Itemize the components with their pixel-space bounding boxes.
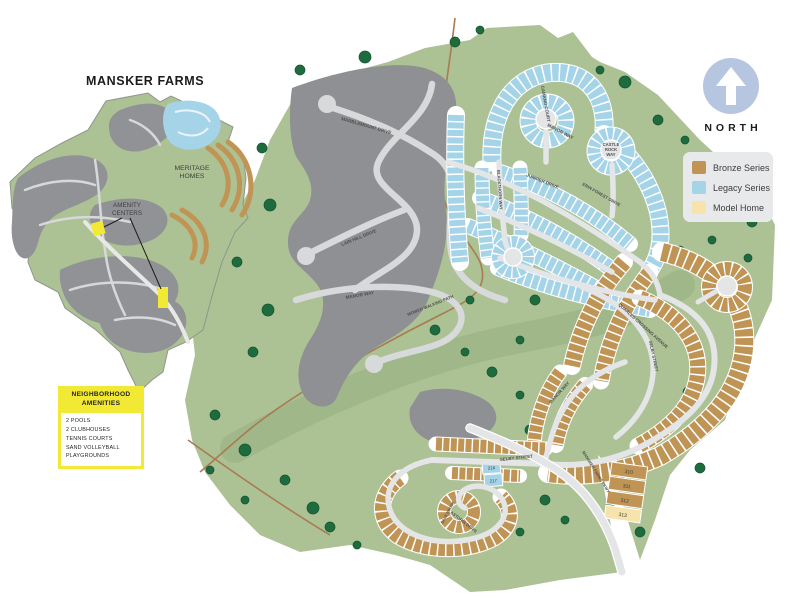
model-home-swatch bbox=[692, 201, 706, 214]
bronze-series-swatch bbox=[692, 161, 706, 174]
amenities-item: TENNIS COURTS bbox=[66, 435, 136, 444]
legend-label: Model Home bbox=[713, 203, 764, 213]
meritage-homes-label: HOMES bbox=[180, 173, 205, 180]
amenity-centers-label: AMENITY bbox=[113, 202, 142, 209]
main-map: 310 311 312 313 216 217 bbox=[185, 18, 775, 592]
amenities-item: 2 CLUBHOUSES bbox=[66, 426, 136, 435]
lot-number: 216 bbox=[488, 465, 496, 471]
legend-label: Bronze Series bbox=[713, 163, 770, 173]
lot-number: 313 bbox=[618, 512, 627, 519]
neighborhood-amenities-box: NEIGHBORHOOD AMENITIES 2 POOLS 2 CLUBHOU… bbox=[58, 386, 144, 469]
amenity-marker-east bbox=[158, 287, 168, 308]
map-title: MANSKER FARMS bbox=[86, 74, 204, 88]
amenities-item: 2 POOLS bbox=[66, 417, 136, 426]
north-label: NORTH bbox=[699, 122, 763, 134]
legend-row-bronze: Bronze Series bbox=[692, 161, 764, 174]
amenities-item: SAND VOLLEYBALL bbox=[66, 444, 136, 453]
lot-number: 310 bbox=[624, 469, 633, 476]
amenities-list: 2 POOLS 2 CLUBHOUSES TENNIS COURTS SAND … bbox=[58, 413, 144, 470]
community-site-map: 310 311 312 313 216 217 bbox=[0, 0, 795, 600]
amenity-centers-label: CENTERS bbox=[112, 210, 142, 217]
site-map-page: 310 311 312 313 216 217 bbox=[0, 0, 795, 600]
lot-number: 217 bbox=[490, 478, 498, 484]
north-arrow-icon bbox=[703, 58, 759, 114]
compass: NORTH bbox=[699, 58, 763, 134]
amenities-item: PLAYGROUNDS bbox=[66, 452, 136, 461]
meritage-homes-label: MERITAGE bbox=[175, 165, 210, 172]
lot-number: 311 bbox=[622, 483, 631, 490]
amenities-heading: NEIGHBORHOOD AMENITIES bbox=[58, 386, 144, 413]
legend: Bronze Series Legacy Series Model Home bbox=[683, 152, 773, 222]
legend-row-legacy: Legacy Series bbox=[692, 181, 764, 194]
legend-row-model: Model Home bbox=[692, 201, 764, 214]
legacy-series-swatch bbox=[692, 181, 706, 194]
legend-label: Legacy Series bbox=[713, 183, 770, 193]
street-label-castle-rock-3: WAY bbox=[606, 152, 615, 157]
lot-number: 312 bbox=[620, 498, 629, 505]
